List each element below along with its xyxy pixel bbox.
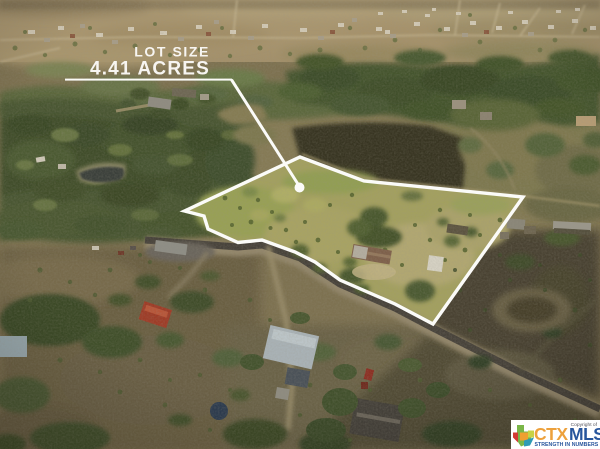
svg-text:STRENGTH IN NUMBERS: STRENGTH IN NUMBERS [535, 442, 599, 448]
svg-text:LOT SIZE: LOT SIZE [134, 44, 210, 60]
svg-text:4.41 ACRES: 4.41 ACRES [90, 58, 210, 79]
